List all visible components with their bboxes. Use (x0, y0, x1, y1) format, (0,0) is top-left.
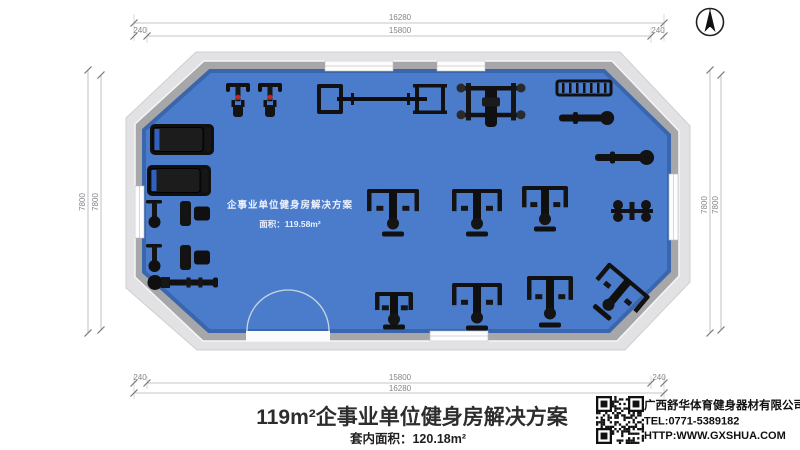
floor-plan: 企事业单位健身房解决方案 面积：119.58m² (126, 52, 690, 350)
sheet-subtitle-area: 套内面积：120.18m² (349, 431, 466, 446)
dimension-left: 7800 7800 (78, 70, 101, 333)
dim-right-inner-label: 7800 (711, 196, 720, 214)
dim-top-inner-label: 15800 (389, 26, 412, 35)
treadmill-1 (150, 124, 214, 155)
dimension-bottom: 15800 16280 240 240 (133, 373, 666, 399)
company-tel: TEL:0771-5389182 (644, 416, 739, 428)
plan-watermark-area: 面积：119.58m² (259, 219, 321, 229)
bench-press-station (457, 83, 526, 127)
plan-watermark-title: 企事业单位健身房解决方案 (226, 199, 353, 211)
dimension-top: 16280 15800 240 240 (133, 13, 665, 43)
adjustable-bench (611, 200, 653, 222)
dimension-right: 7800 7800 (700, 70, 721, 333)
dim-left-inner-label: 7800 (91, 193, 100, 211)
qr-code-icon (594, 394, 646, 446)
dim-right-outer-label: 7800 (700, 196, 709, 214)
north-compass-icon (697, 9, 724, 36)
company-website: HTTP:WWW.GXSHUA.COM (644, 430, 786, 442)
plan-canvas: 16280 15800 240 240 15800 16280 240 240 … (0, 0, 800, 450)
dim-top-outer-label: 16280 (389, 13, 412, 22)
sheet-title: 119m²企事业单位健身房解决方案 (256, 405, 569, 429)
dim-left-outer-label: 7800 (78, 193, 87, 211)
dim-bottom-inner-label: 15800 (389, 373, 412, 382)
dim-top-left-offset-label: 240 (133, 26, 147, 35)
treadmill-2 (147, 165, 211, 196)
footer: 119m²企事业单位健身房解决方案 套内面积：120.18m² 广西舒华体育健身… (256, 394, 800, 446)
dim-bottom-outer-label: 16280 (389, 384, 412, 393)
dim-bottom-right-offset-label: 240 (652, 373, 666, 382)
company-name: 广西舒华体育健身器材有限公司 (644, 398, 800, 412)
gym-floor-plan-sheet: 16280 15800 240 240 15800 16280 240 240 … (0, 0, 800, 450)
dim-bottom-left-offset-label: 240 (133, 373, 147, 382)
